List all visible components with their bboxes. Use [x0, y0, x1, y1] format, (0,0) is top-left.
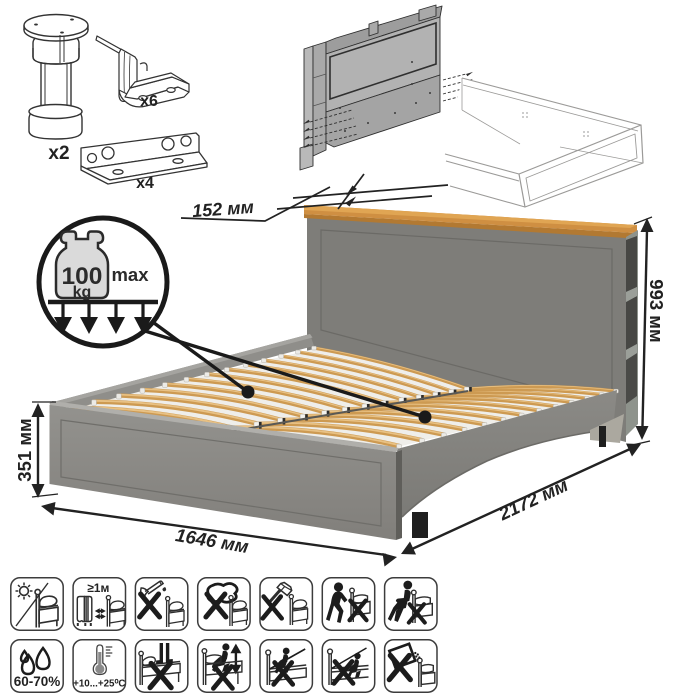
svg-text:kg: kg: [73, 284, 92, 301]
svg-text:351 мм: 351 мм: [14, 418, 35, 481]
svg-text:60-70%: 60-70%: [14, 674, 61, 689]
svg-text:993 мм: 993 мм: [646, 279, 667, 342]
svg-text:x6: x6: [140, 93, 158, 110]
svg-text:≥1м: ≥1м: [87, 581, 109, 595]
svg-text:x2: x2: [48, 143, 69, 164]
svg-text:+10...+25⁰С: +10...+25⁰С: [73, 679, 125, 690]
svg-text:max: max: [111, 264, 149, 285]
svg-text:x4: x4: [136, 175, 154, 192]
